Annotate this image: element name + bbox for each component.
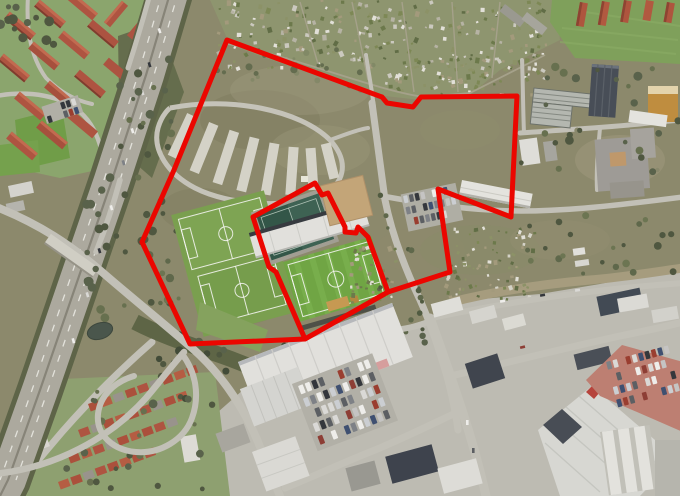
aerial-map	[0, 0, 680, 496]
photo-tint	[0, 0, 680, 496]
aerial-map-image	[0, 0, 680, 496]
